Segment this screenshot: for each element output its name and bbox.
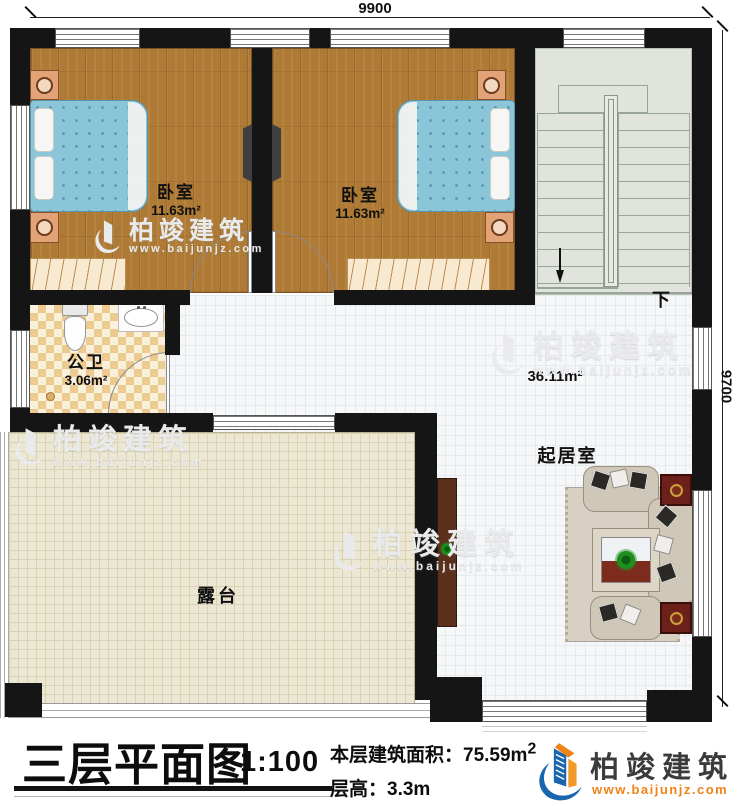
side-table	[660, 474, 692, 506]
dimension-line-top	[30, 17, 710, 18]
plant-icon	[615, 549, 637, 571]
sofa-cushion	[629, 471, 649, 491]
wall-living-left	[415, 432, 437, 700]
nightstand	[485, 212, 514, 243]
room-label-bedroom2: 卧室 11.63m²	[310, 181, 410, 221]
wall-segment	[692, 390, 712, 490]
room-label-bathroom: 公卫 3.06m²	[36, 348, 136, 388]
lamp-icon	[483, 77, 500, 94]
title-underline-thin	[14, 796, 332, 797]
stair-landing	[558, 85, 648, 113]
room-area: 11.63m²	[126, 203, 226, 218]
brand-website: www.baijunjz.com	[592, 782, 728, 797]
brand-logo-icon	[533, 740, 585, 802]
window	[563, 28, 645, 48]
stairs-down-label: 下	[648, 286, 674, 312]
faucet-icon	[143, 306, 146, 309]
wall-segment	[10, 210, 30, 330]
stair-direction-arrow-head	[556, 270, 564, 283]
room-area: 11.63m²	[310, 206, 410, 221]
wall-segment	[450, 28, 563, 48]
room-name: 卧室	[310, 181, 410, 206]
window	[55, 28, 140, 48]
sofa-cushion	[609, 468, 629, 488]
room-name: 卧室	[126, 178, 226, 203]
pillow	[490, 108, 510, 152]
stair-rail-inner	[608, 99, 614, 283]
wall-segment	[310, 28, 330, 48]
toilet-tank	[62, 304, 88, 316]
stair-rail	[604, 95, 618, 287]
table-emblem-icon	[670, 484, 683, 497]
window-sill-line	[482, 726, 647, 727]
wall-bedroom-divider	[252, 48, 272, 293]
wall-segment	[692, 28, 712, 327]
wardrobe	[347, 258, 490, 291]
wall-segment	[647, 690, 712, 722]
bathroom-door-leaf	[166, 352, 170, 414]
wall-bedrooms-bottom	[10, 290, 190, 305]
terrace-railing-bottom	[9, 703, 433, 718]
stair-flight-right	[618, 113, 690, 287]
pillow	[34, 156, 54, 200]
floor-area-line: 本层建筑面积：75.59m2	[330, 740, 536, 767]
wall-segment	[140, 28, 230, 48]
stair-bottom-line	[537, 287, 618, 289]
tv-icon	[272, 124, 281, 182]
window	[230, 28, 310, 48]
wall-bathroom-right	[165, 290, 180, 355]
wardrobe	[30, 258, 126, 291]
floor-height-line: 层高：3.3m	[330, 774, 430, 801]
title-underline	[14, 786, 332, 791]
wall-segment	[10, 28, 30, 105]
wall-terrace-top	[335, 413, 437, 432]
nightstand	[477, 70, 506, 100]
floorplan-canvas: 卧室 11.63m² 卧室 11.63m² 公卫 3.06m² 36.11m² …	[0, 0, 750, 806]
lamp-icon	[36, 77, 53, 94]
room-label-living: 起居室	[510, 442, 625, 468]
floor-area-label: 本层建筑面积：	[330, 745, 463, 766]
room-label-terrace: 露台	[168, 582, 268, 608]
faucet-icon	[137, 306, 140, 309]
nightstand	[30, 70, 59, 100]
lamp-icon	[491, 219, 508, 236]
scale-label: 1:100	[240, 746, 319, 779]
window	[692, 327, 712, 390]
wall-segment	[430, 677, 482, 722]
window	[482, 700, 647, 722]
terrace-sliding-door	[213, 415, 335, 430]
side-table	[660, 602, 692, 634]
pillow	[490, 156, 510, 200]
room-area: 3.06m²	[36, 373, 136, 388]
room-name: 公卫	[36, 348, 136, 373]
terrace-corner-post	[5, 683, 42, 717]
dimension-top-value: 9900	[330, 0, 420, 17]
tv-icon	[243, 124, 252, 182]
wall-bedroom2-stairs	[515, 28, 535, 295]
floor-drain-icon	[46, 392, 55, 401]
window	[692, 490, 712, 637]
brand-company-name: 柏竣建筑	[590, 744, 734, 786]
toilet-bowl	[64, 316, 86, 351]
floor-area-value: 75.59m	[463, 745, 527, 766]
wall-terrace-top	[10, 413, 213, 432]
wall-bedrooms-bottom	[334, 290, 535, 305]
page-title: 三层平面图	[22, 728, 252, 793]
window	[330, 28, 450, 48]
bedroom2-door-leaf	[272, 231, 276, 293]
terrace-railing-left	[0, 432, 9, 718]
table-emblem-icon	[670, 612, 683, 625]
stair-flight-left	[537, 113, 604, 287]
window	[10, 330, 30, 408]
living-area-value: 36.11m²	[500, 368, 610, 385]
dimension-right-value: 9700	[718, 359, 735, 415]
window-sill-line	[482, 731, 647, 732]
pillow	[34, 108, 54, 152]
room-label-bedroom1: 卧室 11.63m²	[126, 178, 226, 218]
terrace-floor	[8, 432, 415, 706]
nightstand	[30, 212, 59, 243]
sink-basin	[124, 308, 158, 327]
plant-icon	[440, 542, 454, 556]
window	[10, 105, 30, 210]
lamp-icon	[36, 219, 53, 236]
